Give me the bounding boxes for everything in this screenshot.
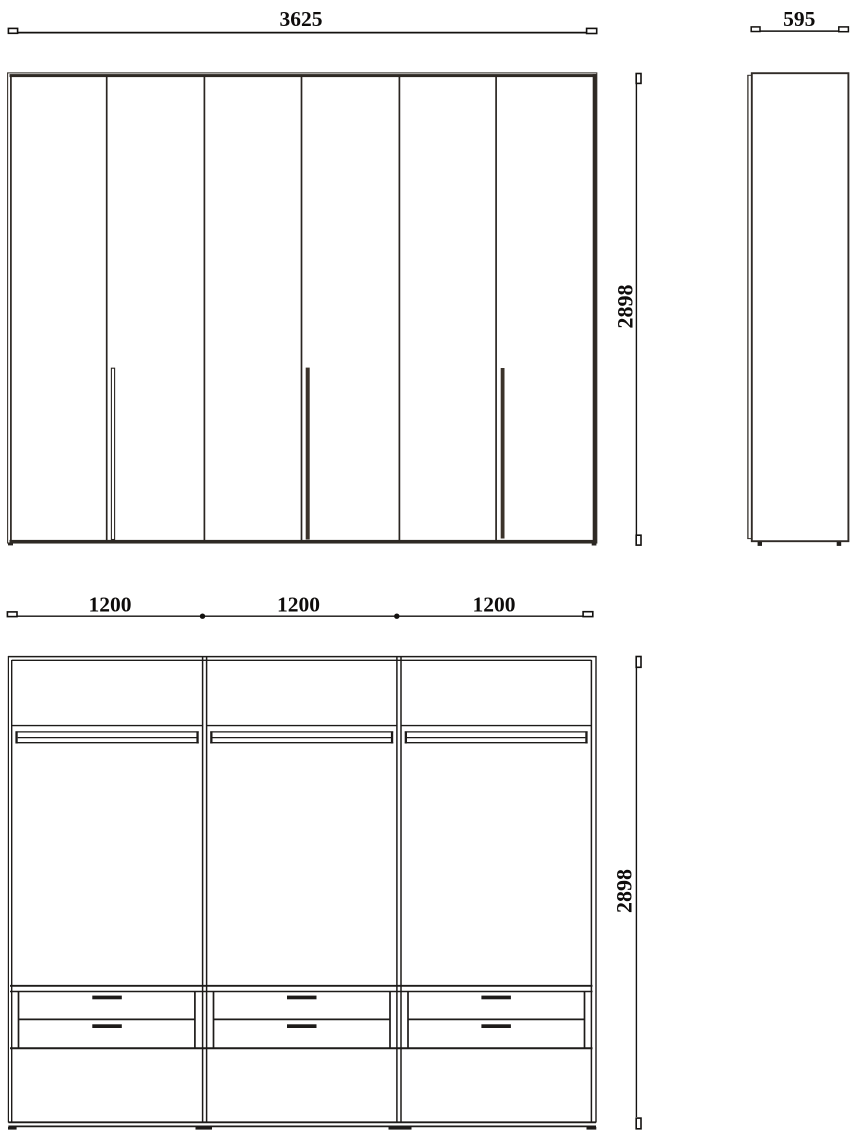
svg-text:1200: 1200 (277, 592, 320, 616)
svg-text:1200: 1200 (89, 592, 132, 616)
svg-text:2898: 2898 (612, 869, 637, 913)
svg-text:3625: 3625 (280, 7, 323, 31)
svg-text:595: 595 (783, 7, 815, 31)
svg-text:1200: 1200 (473, 592, 516, 616)
svg-text:2898: 2898 (613, 285, 638, 329)
